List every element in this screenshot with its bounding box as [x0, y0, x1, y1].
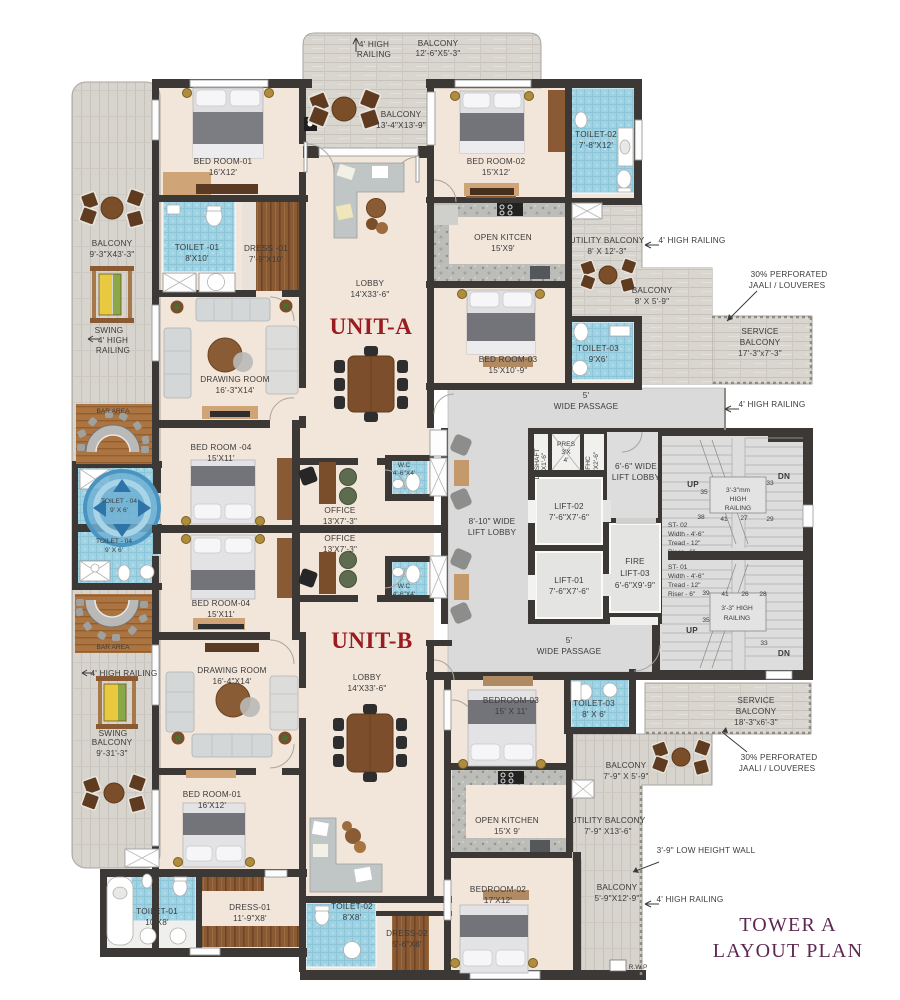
svg-text:6'-6" WIDE: 6'-6" WIDE: [615, 462, 657, 471]
svg-text:Tread - 12": Tread - 12": [668, 540, 701, 547]
svg-text:RAILING: RAILING: [724, 615, 750, 622]
svg-text:Width - 4'-6": Width - 4'-6": [668, 573, 705, 580]
svg-text:DRESS-01: DRESS-01: [229, 903, 271, 912]
svg-text:WIDE PASSAGE: WIDE PASSAGE: [537, 647, 602, 656]
svg-text:BED ROOM-01: BED ROOM-01: [194, 157, 253, 166]
svg-text:16'X12': 16'X12': [198, 801, 226, 810]
svg-text:41: 41: [720, 516, 728, 523]
svg-text:OFFICE: OFFICE: [324, 506, 356, 515]
svg-text:TOILET-03: TOILET-03: [577, 344, 619, 353]
svg-text:7'-8"X12': 7'-8"X12': [579, 141, 613, 150]
svg-text:8' X 5'-9": 8' X 5'-9": [635, 297, 669, 306]
svg-text:26: 26: [741, 591, 749, 598]
svg-text:14'X33'-6": 14'X33'-6": [348, 684, 387, 693]
svg-text:DRESS -01: DRESS -01: [244, 244, 288, 253]
svg-text:TOILET-02: TOILET-02: [575, 130, 617, 139]
svg-text:39: 39: [702, 590, 710, 597]
svg-text:38: 38: [697, 514, 705, 521]
svg-text:41: 41: [721, 591, 729, 598]
svg-text:13'X7'-3": 13'X7'-3": [323, 545, 357, 554]
svg-text:TOILET-02: TOILET-02: [331, 902, 373, 911]
svg-text:35: 35: [702, 617, 710, 624]
svg-text:16'-4"X14': 16'-4"X14': [213, 677, 252, 686]
svg-text:4'X2'-6": 4'X2'-6": [593, 451, 600, 474]
svg-text:4' HIGH: 4' HIGH: [359, 40, 389, 49]
svg-text:BALCONY: BALCONY: [92, 239, 133, 248]
svg-text:UTILITY BALCONY: UTILITY BALCONY: [571, 816, 646, 825]
svg-text:Riser - 6": Riser - 6": [668, 549, 696, 556]
svg-text:TOWER A: TOWER A: [739, 914, 836, 936]
svg-text:15'X11': 15'X11': [207, 454, 235, 463]
svg-text:16'-3"X14': 16'-3"X14': [216, 386, 255, 395]
svg-text:15'X12': 15'X12': [482, 168, 510, 177]
svg-text:FHC: FHC: [585, 456, 592, 470]
svg-text:4': 4': [564, 457, 569, 464]
svg-text:PRES: PRES: [557, 441, 576, 448]
svg-text:BALCONY: BALCONY: [597, 883, 638, 892]
svg-text:UP: UP: [686, 626, 698, 635]
svg-text:3'-3"mm: 3'-3"mm: [726, 487, 751, 494]
svg-text:4' HIGH: 4' HIGH: [98, 336, 128, 345]
svg-text:3'X: 3'X: [561, 449, 571, 456]
svg-text:ST- 01: ST- 01: [668, 564, 688, 571]
svg-text:4'-6"X4': 4'-6"X4': [393, 470, 415, 477]
svg-text:33: 33: [760, 640, 768, 647]
svg-text:Riser - 6": Riser - 6": [668, 591, 696, 598]
svg-text:BEDROOM-03: BEDROOM-03: [483, 696, 539, 705]
svg-text:18'-3"x6'-3": 18'-3"x6'-3": [734, 718, 778, 727]
svg-text:W.C: W.C: [398, 462, 411, 469]
svg-text:R.W.P: R.W.P: [629, 964, 648, 971]
svg-text:JAALI / LOUVERES: JAALI / LOUVERES: [749, 281, 826, 290]
svg-text:13'X7'-3": 13'X7'-3": [323, 517, 357, 526]
svg-text:BEDROOM-02: BEDROOM-02: [470, 885, 526, 894]
svg-text:11'-9"X8': 11'-9"X8': [233, 914, 267, 923]
svg-text:28: 28: [759, 591, 767, 598]
svg-text:LIFT LOBBY: LIFT LOBBY: [612, 473, 661, 482]
svg-text:TOILET - 04: TOILET - 04: [101, 498, 137, 505]
svg-text:TOILET -01: TOILET -01: [175, 243, 220, 252]
svg-text:BED ROOM-01: BED ROOM-01: [183, 790, 242, 799]
svg-text:3'-3" HIGH: 3'-3" HIGH: [721, 605, 753, 612]
svg-text:7'-9" X13'-6": 7'-9" X13'-6": [584, 827, 632, 836]
svg-text:35: 35: [700, 489, 708, 496]
svg-text:7'-9" X 5'-9": 7'-9" X 5'-9": [603, 772, 648, 781]
svg-text:LIFT-01: LIFT-01: [554, 576, 584, 585]
svg-text:OFFICE: OFFICE: [324, 534, 356, 543]
svg-text:BED ROOM-02: BED ROOM-02: [467, 157, 526, 166]
svg-text:4' HIGH RAILING: 4' HIGH RAILING: [91, 669, 158, 678]
svg-text:RAILING: RAILING: [725, 505, 751, 512]
svg-text:BAR AREA: BAR AREA: [97, 408, 131, 415]
svg-text:15'X 9': 15'X 9': [494, 827, 520, 836]
svg-text:12'-6"X5'-3": 12'-6"X5'-3": [415, 49, 460, 58]
svg-text:15'X10'-9": 15'X10'-9": [489, 366, 528, 375]
svg-text:SWING: SWING: [99, 729, 128, 738]
svg-text:RAILING: RAILING: [96, 346, 130, 355]
svg-text:13'-4"X13'-9": 13'-4"X13'-9": [376, 121, 426, 130]
svg-text:BALCONY: BALCONY: [381, 110, 422, 119]
svg-text:29: 29: [766, 516, 774, 523]
svg-text:DRAWING ROOM: DRAWING ROOM: [200, 375, 269, 384]
svg-text:5': 5': [583, 391, 590, 400]
svg-text:14'X33'-6": 14'X33'-6": [351, 290, 390, 299]
svg-text:RAILING: RAILING: [357, 50, 391, 59]
svg-text:4' HIGH RAILING: 4' HIGH RAILING: [739, 400, 806, 409]
svg-text:Width - 4'-6": Width - 4'-6": [668, 531, 705, 538]
svg-text:7'-6"X7'-6": 7'-6"X7'-6": [549, 587, 589, 596]
svg-text:4'X1'-6": 4'X1'-6": [541, 452, 548, 475]
svg-text:6'-6"X9'-9": 6'-6"X9'-9": [615, 581, 655, 590]
svg-text:BALCONY: BALCONY: [632, 286, 673, 295]
svg-text:5'-6"X8': 5'-6"X8': [392, 940, 422, 949]
svg-text:SERVICE: SERVICE: [737, 696, 775, 705]
svg-text:DRESS-02: DRESS-02: [386, 929, 428, 938]
svg-text:15'X11': 15'X11': [207, 610, 235, 619]
svg-text:FIRE: FIRE: [625, 557, 645, 566]
svg-text:3'-9" LOW HEIGHT WALL: 3'-9" LOW HEIGHT WALL: [657, 846, 756, 855]
svg-text:LOBBY: LOBBY: [356, 279, 385, 288]
svg-text:BALCONY: BALCONY: [740, 338, 781, 347]
svg-text:8'X10': 8'X10': [185, 254, 209, 263]
svg-text:8' X 6': 8' X 6': [582, 710, 606, 719]
svg-text:TOILET-03: TOILET-03: [573, 699, 615, 708]
svg-text:17'X12': 17'X12': [484, 896, 512, 905]
svg-text:W.C: W.C: [398, 583, 411, 590]
svg-text:5'-9"X12'-9": 5'-9"X12'-9": [594, 894, 639, 903]
svg-text:8'X8': 8'X8': [343, 913, 362, 922]
svg-text:4'-6"X4': 4'-6"X4': [393, 591, 415, 598]
svg-text:33: 33: [766, 480, 774, 487]
svg-text:BED ROOM-03: BED ROOM-03: [479, 355, 538, 364]
svg-text:OPEN KITCEN: OPEN KITCEN: [474, 233, 532, 242]
svg-text:BAR AREA: BAR AREA: [97, 644, 131, 651]
svg-text:27: 27: [740, 515, 748, 522]
svg-text:SERVICE: SERVICE: [741, 327, 779, 336]
svg-text:SWING: SWING: [95, 326, 124, 335]
svg-text:BALCONY: BALCONY: [736, 707, 777, 716]
svg-text:17'-3"x7'-3": 17'-3"x7'-3": [738, 349, 782, 358]
svg-text:LAYOUT PLAN: LAYOUT PLAN: [713, 940, 863, 962]
svg-text:9' X 6': 9' X 6': [110, 507, 128, 514]
svg-text:7'-6"X7'-6": 7'-6"X7'-6": [549, 513, 589, 522]
svg-text:30% PERFORATED: 30% PERFORATED: [741, 753, 818, 762]
svg-text:LIFT-02: LIFT-02: [554, 502, 584, 511]
svg-text:DN: DN: [778, 472, 790, 481]
svg-text:15'X9': 15'X9': [491, 244, 515, 253]
svg-text:LIFT-03: LIFT-03: [620, 569, 650, 578]
svg-text:BALCONY: BALCONY: [92, 738, 133, 747]
svg-text:9' X 6': 9' X 6': [105, 547, 123, 554]
svg-text:ST- 02: ST- 02: [668, 522, 688, 529]
svg-text:JAALI / LOUVERES: JAALI / LOUVERES: [739, 764, 816, 773]
svg-text:DRAWING ROOM: DRAWING ROOM: [197, 666, 266, 675]
svg-text:UNIT-A: UNIT-A: [330, 314, 413, 339]
svg-text:8' X 12'-3": 8' X 12'-3": [587, 247, 626, 256]
svg-text:4' HIGH RAILING: 4' HIGH RAILING: [657, 895, 724, 904]
svg-text:TOILET - 04: TOILET - 04: [96, 538, 132, 545]
svg-text:WIDE PASSAGE: WIDE PASSAGE: [554, 402, 619, 411]
svg-text:LIFT LOBBY: LIFT LOBBY: [468, 528, 517, 537]
svg-text:UTILITY BALCONY: UTILITY BALCONY: [570, 236, 645, 245]
svg-text:BALCONY: BALCONY: [606, 761, 647, 770]
svg-text:TOILET-01: TOILET-01: [136, 907, 178, 916]
svg-text:BED ROOM -04: BED ROOM -04: [190, 443, 251, 452]
svg-text:UNIT-B: UNIT-B: [331, 628, 412, 653]
svg-text:UP: UP: [687, 480, 699, 489]
svg-text:9'-3"X43'-3": 9'-3"X43'-3": [89, 250, 134, 259]
svg-text:LV SHAFT: LV SHAFT: [534, 448, 541, 479]
svg-text:9'X6': 9'X6': [589, 355, 608, 364]
svg-text:4' HIGH RAILING: 4' HIGH RAILING: [659, 236, 726, 245]
svg-text:BALCONY: BALCONY: [418, 39, 459, 48]
svg-text:LOBBY: LOBBY: [353, 673, 382, 682]
svg-text:10'X8': 10'X8': [145, 918, 169, 927]
svg-text:5': 5': [566, 636, 573, 645]
svg-text:HIGH: HIGH: [730, 496, 747, 503]
svg-text:16'X12': 16'X12': [209, 168, 237, 177]
svg-text:DN: DN: [778, 649, 790, 658]
svg-text:15' X 11': 15' X 11': [495, 707, 528, 716]
svg-text:BED ROOM-04: BED ROOM-04: [192, 599, 251, 608]
svg-text:8'-10" WIDE: 8'-10" WIDE: [469, 517, 516, 526]
svg-text:OPEN KITCHEN: OPEN KITCHEN: [475, 816, 539, 825]
svg-text:30% PERFORATED: 30% PERFORATED: [751, 270, 828, 279]
svg-text:7'-9"X10': 7'-9"X10': [249, 255, 283, 264]
svg-text:9'-31'-3": 9'-31'-3": [96, 749, 128, 758]
svg-text:Tread - 12": Tread - 12": [668, 582, 701, 589]
